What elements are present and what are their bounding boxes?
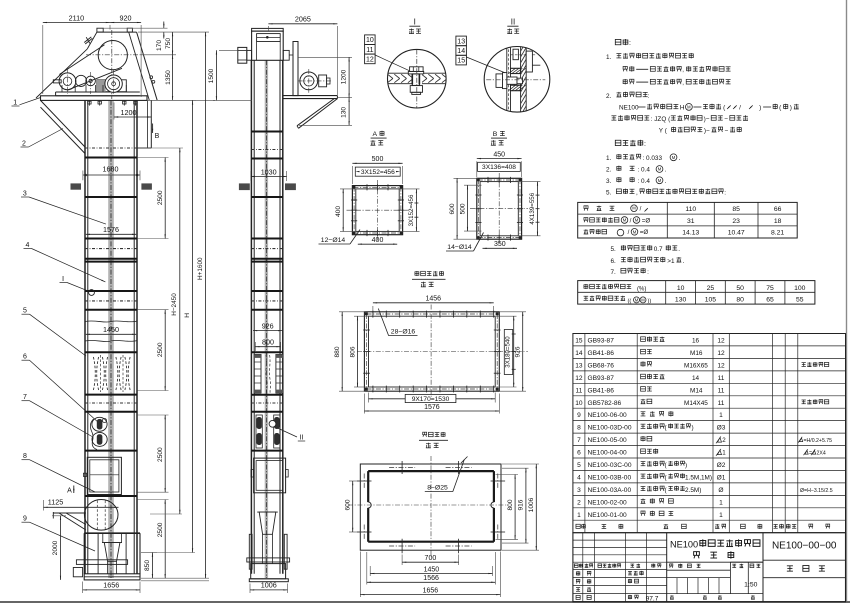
svg-text:2: 2	[22, 141, 26, 148]
svg-text:12: 12	[717, 362, 725, 369]
svg-text:H: H	[184, 313, 191, 318]
svg-text:700: 700	[425, 555, 437, 562]
svg-text:I: I	[414, 17, 416, 26]
svg-text:350: 350	[494, 241, 506, 248]
svg-text:12: 12	[575, 375, 583, 382]
svg-text:2: 2	[722, 437, 726, 444]
svg-text:65: 65	[766, 297, 774, 304]
svg-text:100: 100	[794, 285, 806, 292]
svg-text:/: /	[630, 217, 632, 224]
svg-text:600: 600	[449, 203, 456, 214]
svg-text:/: /	[739, 105, 741, 112]
svg-text:14.13: 14.13	[682, 230, 699, 237]
svg-text:1680: 1680	[103, 165, 119, 174]
svg-text:/: /	[640, 206, 642, 213]
svg-text:850: 850	[144, 560, 151, 571]
svg-text:450: 450	[493, 151, 505, 158]
svg-text:5: 5	[23, 308, 27, 315]
svg-text:3X136=408: 3X136=408	[482, 164, 516, 171]
svg-text:M14: M14	[690, 387, 703, 394]
svg-text:80: 80	[736, 297, 744, 304]
svg-text:1.: 1.	[606, 54, 612, 61]
svg-text:1: 1	[719, 412, 723, 419]
svg-text:1656: 1656	[423, 587, 439, 594]
svg-text:Ø3: Ø3	[717, 425, 726, 432]
svg-text:15: 15	[457, 58, 465, 65]
svg-text::: :	[647, 269, 649, 276]
svg-text:Ø1: Ø1	[717, 474, 726, 481]
svg-text:1656: 1656	[103, 581, 119, 590]
svg-text:800: 800	[262, 338, 274, 347]
svg-text:.: .	[678, 246, 680, 253]
svg-text::: :	[629, 40, 631, 47]
svg-text:7.: 7.	[611, 269, 617, 276]
svg-text:12: 12	[717, 338, 725, 345]
svg-text:M: M	[687, 104, 691, 109]
svg-text:GB5782-86: GB5782-86	[588, 400, 622, 407]
svg-text:10.47: 10.47	[728, 230, 745, 237]
svg-text:=H/0.2+5.75: =H/0.2+5.75	[804, 438, 833, 444]
svg-text:7: 7	[577, 437, 581, 444]
svg-text:2X4: 2X4	[817, 451, 826, 457]
svg-text:14−Ø14: 14−Ø14	[447, 244, 472, 251]
svg-text:12: 12	[717, 350, 725, 357]
svg-text:7: 7	[23, 394, 27, 401]
svg-text:11: 11	[718, 387, 725, 394]
svg-text:/: /	[628, 229, 630, 236]
svg-text:1200: 1200	[341, 69, 348, 84]
svg-text:8.21: 8.21	[771, 230, 784, 237]
svg-text:3X180=540: 3X180=540	[504, 336, 511, 368]
svg-text:25: 25	[707, 285, 715, 292]
svg-text:13: 13	[575, 362, 583, 369]
svg-text:2.5M): 2.5M)	[685, 487, 701, 494]
svg-text:NE100-01-00: NE100-01-00	[588, 512, 628, 519]
svg-text:130: 130	[341, 107, 348, 118]
svg-text:5: 5	[577, 462, 581, 469]
svg-text:NE100: NE100	[670, 540, 698, 550]
svg-text:2.: 2.	[606, 167, 612, 174]
svg-text:2000: 2000	[52, 540, 59, 555]
svg-text:3: 3	[577, 487, 581, 494]
svg-text:500: 500	[372, 156, 384, 163]
svg-text:((: ((	[628, 298, 632, 304]
svg-text:)−: )−	[704, 128, 710, 135]
svg-text:11: 11	[718, 375, 725, 382]
svg-text:): )	[759, 105, 761, 112]
svg-text:2: 2	[577, 499, 581, 506]
svg-text:>1: >1	[667, 258, 675, 265]
svg-text:.: .	[665, 167, 667, 174]
svg-text:NE100-03C-00: NE100-03C-00	[588, 462, 632, 469]
svg-text:M: M	[672, 155, 676, 160]
svg-text:Y (: Y (	[659, 128, 668, 135]
svg-text:NE100: NE100	[619, 105, 639, 112]
svg-text:M: M	[658, 167, 662, 172]
svg-text:2.: 2.	[606, 93, 612, 100]
svg-text:GB93-87: GB93-87	[588, 375, 615, 382]
svg-text:1006: 1006	[528, 497, 535, 512]
svg-text:2065: 2065	[295, 15, 311, 24]
svg-text:: JZQ (: : JZQ (	[651, 116, 671, 123]
svg-text:3: 3	[23, 191, 27, 198]
svg-text:H−2450: H−2450	[171, 293, 178, 316]
svg-text:1500: 1500	[208, 68, 215, 83]
svg-text:28−Ø16: 28−Ø16	[391, 328, 416, 335]
svg-text:M: M	[635, 218, 639, 223]
svg-text:M: M	[635, 297, 639, 302]
svg-text:75: 75	[766, 285, 774, 292]
svg-text:920: 920	[120, 13, 132, 22]
svg-text:0.7: 0.7	[654, 246, 663, 253]
svg-text:15: 15	[575, 338, 583, 345]
svg-text:1: 1	[577, 512, 581, 519]
svg-text:1125: 1125	[48, 497, 63, 506]
svg-text:1576: 1576	[424, 404, 440, 411]
svg-text:130: 130	[675, 297, 687, 304]
svg-text:600: 600	[344, 499, 351, 510]
svg-text:): )	[692, 425, 694, 432]
svg-text:1: 1	[719, 499, 723, 506]
svg-text:Ø2: Ø2	[717, 462, 726, 469]
svg-text:31: 31	[687, 218, 695, 225]
svg-text:1200: 1200	[121, 108, 137, 117]
svg-text::: :	[724, 190, 726, 197]
svg-text:2500: 2500	[157, 522, 164, 537]
svg-text:14: 14	[575, 350, 583, 357]
svg-text:NE100-02-00: NE100-02-00	[588, 499, 628, 506]
svg-text:4X139=556: 4X139=556	[529, 192, 536, 224]
svg-text:2500: 2500	[157, 447, 164, 462]
svg-text:66: 66	[774, 206, 782, 213]
svg-text:NE100-05-00: NE100-05-00	[588, 437, 628, 444]
svg-text:1:50: 1:50	[744, 581, 757, 588]
svg-text:8−Ø25: 8−Ø25	[427, 484, 448, 491]
svg-text:NE100-03D-00: NE100-03D-00	[588, 425, 632, 432]
svg-text:B: B	[155, 133, 160, 140]
svg-text:12: 12	[366, 56, 374, 63]
svg-text:3X152=456: 3X152=456	[408, 194, 415, 226]
svg-text:1450: 1450	[424, 566, 440, 573]
svg-text:M16: M16	[690, 350, 703, 357]
svg-text:M16X65: M16X65	[684, 362, 708, 369]
svg-text:M: M	[658, 178, 662, 183]
svg-text:23: 23	[732, 218, 740, 225]
svg-text:4: 4	[577, 474, 581, 481]
svg-text:: 0.4: : 0.4	[638, 178, 651, 185]
svg-text:−: −	[724, 116, 728, 123]
svg-text:.: .	[679, 155, 681, 162]
svg-text:400: 400	[372, 237, 384, 244]
svg-text:A: A	[67, 488, 72, 495]
svg-text:12−Ø14: 12−Ø14	[321, 237, 346, 244]
svg-text:1576: 1576	[103, 225, 119, 234]
svg-text:NE100-03B-00: NE100-03B-00	[588, 474, 632, 481]
svg-text:)): ))	[648, 298, 652, 304]
svg-text:H: H	[680, 105, 685, 112]
svg-text:14: 14	[692, 375, 700, 382]
svg-text:3.: 3.	[606, 178, 612, 185]
svg-text:=Ø: =Ø	[642, 217, 651, 224]
svg-text:10: 10	[366, 37, 374, 44]
svg-text:9X170=1530: 9X170=1530	[412, 396, 450, 403]
svg-text:: 0.033: : 0.033	[643, 155, 663, 162]
svg-text:9: 9	[23, 516, 27, 523]
svg-text:916: 916	[518, 499, 525, 510]
svg-text:1030: 1030	[261, 167, 277, 176]
svg-text:8: 8	[23, 453, 27, 460]
svg-text:2500: 2500	[157, 342, 164, 357]
svg-text:1.5M,1M): 1.5M,1M)	[685, 474, 712, 481]
svg-text:I: I	[62, 274, 64, 283]
svg-text:50: 50	[736, 285, 744, 292]
svg-text:M14X45: M14X45	[684, 400, 708, 407]
svg-text:5.: 5.	[611, 246, 617, 253]
svg-text:11: 11	[366, 47, 373, 54]
svg-text:9: 9	[577, 412, 581, 419]
svg-text:800: 800	[507, 499, 514, 510]
svg-text:Ø=H−3.15/2.5: Ø=H−3.15/2.5	[800, 488, 833, 494]
svg-text:1566: 1566	[423, 575, 439, 582]
svg-text:97.7: 97.7	[646, 595, 659, 602]
svg-text:1: 1	[722, 450, 726, 457]
svg-text:NE100-03A-00: NE100-03A-00	[588, 487, 632, 494]
svg-text:II: II	[300, 435, 304, 442]
svg-text::: :	[648, 93, 650, 100]
svg-text:M: M	[632, 206, 636, 211]
svg-text:NE100−00−00: NE100−00−00	[772, 541, 837, 552]
svg-text:1350: 1350	[165, 70, 172, 85]
svg-text:,: ,	[636, 190, 638, 197]
svg-text:926: 926	[515, 346, 522, 357]
svg-text:: 0.4: : 0.4	[638, 167, 651, 174]
svg-text:880: 880	[334, 346, 341, 357]
svg-text:M: M	[633, 229, 637, 234]
svg-text:170: 170	[156, 40, 163, 51]
svg-text:4: 4	[26, 242, 30, 249]
svg-text:55: 55	[796, 297, 804, 304]
svg-text:1456: 1456	[426, 296, 442, 303]
svg-text:GB93-87: GB93-87	[588, 338, 615, 345]
svg-text:11: 11	[575, 387, 582, 394]
svg-text:=: =	[809, 451, 812, 457]
svg-text:2500: 2500	[157, 190, 164, 205]
svg-text:14: 14	[457, 48, 465, 55]
svg-text:16: 16	[692, 338, 700, 345]
svg-text:806: 806	[349, 346, 356, 357]
svg-text:A: A	[373, 131, 378, 138]
svg-text:)−: )−	[704, 116, 710, 123]
svg-text:750: 750	[165, 38, 172, 49]
svg-text:110: 110	[685, 206, 696, 213]
svg-text:): )	[790, 105, 792, 112]
svg-text:1006: 1006	[261, 581, 277, 590]
svg-text:.: .	[665, 178, 667, 185]
svg-text:10: 10	[677, 285, 685, 292]
svg-text:.: .	[683, 258, 685, 265]
svg-text:B: B	[493, 131, 498, 138]
svg-text:GB68-76: GB68-76	[588, 362, 615, 369]
svg-text:(%): (%)	[637, 287, 646, 293]
svg-text:6: 6	[23, 354, 27, 361]
svg-text:6: 6	[577, 450, 581, 457]
svg-text:1.: 1.	[606, 155, 612, 162]
svg-text:400: 400	[335, 206, 342, 217]
svg-text:NE100-04-00: NE100-04-00	[588, 450, 628, 457]
svg-text:GB41-86: GB41-86	[588, 387, 615, 394]
svg-text:=Ø: =Ø	[640, 229, 649, 236]
svg-text:10: 10	[575, 400, 583, 407]
svg-text:II: II	[511, 17, 515, 26]
svg-text:1: 1	[719, 512, 723, 519]
svg-text::: :	[644, 141, 646, 148]
svg-text:11: 11	[718, 400, 725, 407]
svg-text:5.: 5.	[606, 190, 612, 197]
svg-text:6.: 6.	[611, 258, 617, 265]
svg-text:1450: 1450	[103, 325, 119, 334]
svg-text:Ø: Ø	[718, 487, 723, 494]
svg-text:−: −	[725, 128, 729, 135]
svg-text:H+1600: H+1600	[197, 257, 204, 280]
svg-text:2110: 2110	[69, 13, 84, 22]
svg-text:NE100-06-00: NE100-06-00	[588, 412, 628, 419]
svg-text:GB41-86: GB41-86	[588, 350, 615, 357]
svg-text:500: 500	[459, 203, 466, 214]
svg-text:85: 85	[732, 206, 740, 213]
svg-text:M: M	[641, 297, 645, 302]
svg-text:1: 1	[13, 100, 17, 107]
svg-text:18: 18	[774, 218, 782, 225]
svg-text:8: 8	[577, 425, 581, 432]
svg-text:105: 105	[705, 297, 717, 304]
svg-text:M: M	[623, 218, 627, 223]
svg-text:): )	[685, 462, 687, 469]
svg-text:926: 926	[262, 321, 274, 330]
svg-text:13: 13	[457, 38, 465, 45]
svg-text:3X152=456: 3X152=456	[361, 169, 395, 176]
